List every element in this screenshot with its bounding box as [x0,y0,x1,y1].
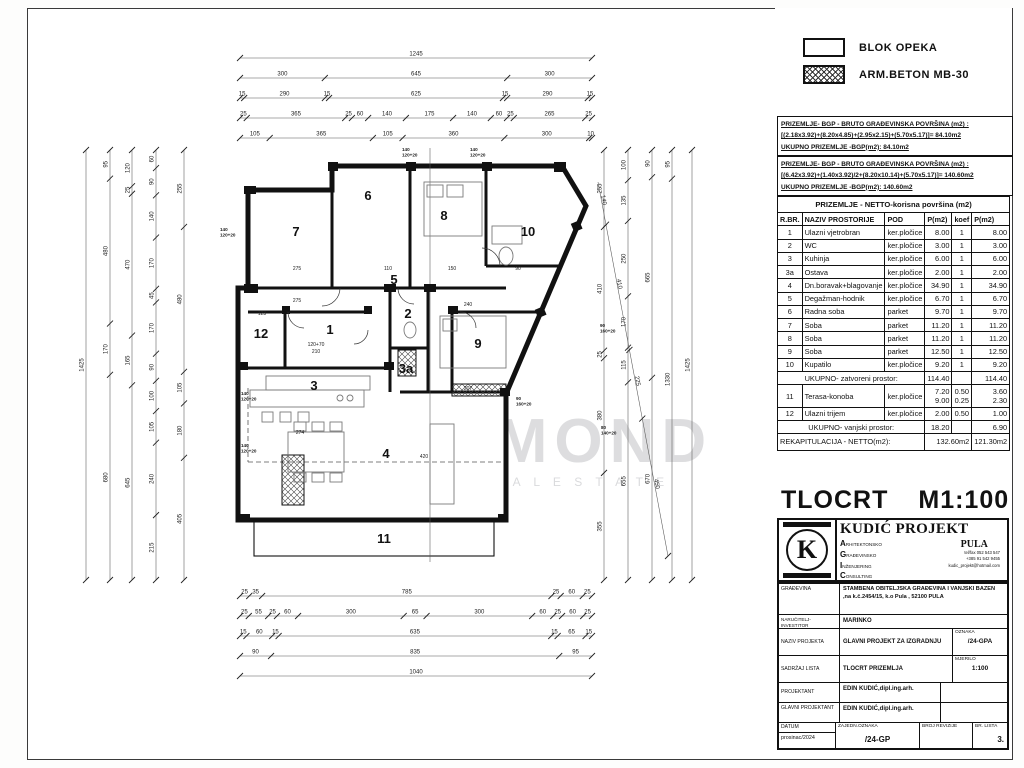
dim-label: 25 [507,112,514,118]
area-table-header: R.BR. NAZIV PROSTORIJE POD P(m2) koef P(… [778,213,1010,226]
dim-label: 115 [622,360,628,370]
dim-label: 300 [542,132,553,138]
dim-label: 25 [585,112,592,118]
interior-dim-label: 210 [312,349,321,355]
table-row: 11Terasa-konobaker.pločice7.20 9.000.50 … [778,385,1010,408]
dim-label: 140 [150,211,156,222]
dim-label: 35 [252,590,259,596]
dim-label: 15 [272,630,279,636]
table-row: 6Radna sobaparket9.7019.70 [778,305,1010,318]
dim-label: 55 [255,610,262,616]
room-number-label: 2 [404,306,411,321]
dim-label: 25 [240,112,247,118]
stamp-right: KUDIĆ PROJEKT ARHITEKTONSKO GRAĐEVINSKO … [837,520,1007,580]
bgp1-line3: UKUPNO PRIZEMLJE -BGP(m2): 84.10m2 [781,142,1009,153]
terrace-outline [254,520,494,556]
room-number-label: 12 [254,326,268,341]
dim-label: 290 [280,92,291,98]
room-number-label: 3a [399,361,414,376]
company-logo: K [779,520,837,580]
dim-label: 60 [568,590,575,596]
area-table-title: PRIZEMLJE - NETTO-korisna površina (m2) [778,197,1010,213]
table-row: 8Sobaparket11.20111.20 [778,332,1010,345]
interior-dim-label: 123 [258,311,267,317]
interior-dim-label: 275 [293,266,302,272]
logo-bar-bottom [783,573,831,578]
dim-label: 300 [474,610,485,616]
room-number-label: 11 [377,531,391,546]
logo-letter: K [797,535,817,565]
dim-label: 1425 [686,358,692,372]
column-header: P(m2) [972,213,1010,226]
area-table-wrap: PRIZEMLJE - NETTO-korisna površina (m2) … [777,196,1009,451]
room-number-label: 1 [326,322,333,337]
dim-label: 1425 [80,358,86,372]
bgp2-line2: [(6.42x3.92)+(1.40x3.92)/2+(8.20x10.14)+… [781,170,1009,181]
dim-label: 90 [252,650,259,656]
dim-label: 165 [126,355,132,366]
oznaka-cell: OZNAKA /24-GPA [952,629,1007,655]
logo-circle: K [786,529,828,571]
column-header: koef [952,213,972,226]
dim-label: 665 [646,272,652,283]
dim-label: 60 [539,610,546,616]
dim-label: 1245 [409,52,423,58]
room-number-label: 3 [310,378,317,393]
broj-revizije-cell: BROJ REVIZIJE [919,723,972,748]
dim-label: 140 [467,112,478,118]
signature-box [940,683,1007,702]
dim-label: 300 [545,72,556,78]
dim-label: 45 [150,292,156,299]
drawing-title-scale: M1:100 [918,486,1009,515]
dim-label: 65 [568,630,575,636]
column-header: POD [885,213,925,226]
dim-label: 240 [150,473,156,484]
dim-label: 645 [411,72,422,78]
area-table-body: 1Ulazni vjetrobranker.pločice8.0018.002W… [778,226,1010,450]
title-block-row-projektant: PROJEKTANT EDIN KUDIĆ,dipl.ing.arh. [779,683,1007,703]
title-block-row-investitor: NARUČITELJ-INVESTITOR MARINKO [779,615,1007,629]
dim-label: 265 [545,112,556,118]
bgp2-line3: UKUPNO PRIZEMLJE -BGP(m2): 140.60m2 [781,182,1009,193]
dim-label: 175 [424,112,435,118]
table-row: 3aOstavaker.pločice2.0012.00 [778,266,1010,279]
dim-label: 15 [585,630,592,636]
dim-label: 60 [569,610,576,616]
drawing-sheet: DIAMOND R E A L E S T A T E [0,0,1024,768]
blok-opeka-swatch [803,38,845,57]
dim-label: 95 [104,160,110,167]
dim-label: 1330 [666,372,672,386]
dim-label: 170 [104,343,110,354]
dim-label: 60 [150,155,156,162]
interior-dim-label: 110 [384,266,392,272]
table-row: 7Sobaparket11.20111.20 [778,319,1010,332]
title-block-row-glavni-projektant: GLAVNI PROJEKTANT EDIN KUDIĆ,dipl.ing.ar… [779,703,1007,723]
dim-label: 290 [542,92,553,98]
dim-label: 25 [553,590,560,596]
interior-dim-label: 120+70 [308,342,325,348]
dim-label: 170 [622,316,628,327]
table-row: 1Ulazni vjetrobranker.pločice8.0018.00 [778,226,1010,239]
interior-dim-label: 420 [420,454,429,460]
legend-label: BLOK OPEKA [859,42,937,54]
dim-label: 180 [178,425,184,436]
dim-label: 645 [126,477,132,488]
title-block-row-gradevina: GRAĐEVINA STAMBENA OBITELJSKA GRAĐEVINA … [779,584,1007,615]
dim-label: 300 [277,72,288,78]
dim-label: 60 [357,112,364,118]
dim-label: 135 [622,195,628,206]
column-header: NAZIV PROSTORIJE [802,213,885,226]
dim-label: 25 [598,350,604,357]
step-hatch-band [452,384,506,396]
bgp-summary-1: PRIZEMLJE- BGP - BRUTO GRAĐEVINSKA POVRŠ… [777,116,1013,156]
dim-label: 60 [284,610,291,616]
dim-label: 25 [126,186,132,193]
dim-label: 105 [178,382,184,393]
window-label: 140120+20 [220,227,236,238]
logo-bar-top [783,522,831,527]
dim-label: 365 [291,112,302,118]
table-row: 12Ulazni trijemker.pločice2.000.501.00 [778,407,1010,420]
dim-label: 360 [448,132,459,138]
dim-label: 655 [622,476,628,487]
recap-row: REKAPITULACIJA - NETTO(m2):132.60m2121.3… [778,434,1010,450]
room-number-label: 6 [364,188,371,203]
dim-label: 1040 [409,670,423,676]
dim-label: 300 [346,610,357,616]
dim-label: 250 [622,253,628,264]
dim-label: 100 [622,159,628,170]
dim-label: 255 [178,183,184,194]
dim-label: 410 [615,279,623,291]
dim-label: 355 [598,521,604,532]
legend-item-arm-beton: ARM.BETON MB-30 [803,65,1003,84]
subtotal-closed-row: UKUPNO- zatvoreni prostor:114.40114.40 [778,372,1010,385]
dim-label: 25 [241,590,248,596]
dim-label: 670 [646,473,652,484]
table-row: 9Sobaparket12.50112.50 [778,345,1010,358]
dim-label: 90 [646,160,652,167]
mjerilo-cell: MJERILO 1:100 [952,656,1007,682]
drawing-title-name: TLOCRT [781,486,888,515]
dim-label: 15 [551,630,558,636]
room-number-label: 5 [390,272,397,287]
room-number-label: 10 [521,224,535,239]
chimney-hatch [282,455,304,505]
signature-box [940,703,1007,722]
company-contact: tel/fax 052 543 547 +385 91 542 9455 kud… [949,550,1001,569]
dim-label: 105 [150,421,156,432]
title-block-row-footer: DATUM prosinac/2024 ZAJEDN.OZNAKA /24-GP… [779,723,1007,748]
bgp2-line1: PRIZEMLJE- BGP - BRUTO GRAĐEVINSKA POVRŠ… [781,159,1009,170]
window-label: 140120+20 [470,147,486,158]
dim-label: 170 [150,322,156,333]
room-number-label: 4 [382,446,390,461]
dim-label: 480 [178,294,184,305]
dim-label: 95 [572,650,579,656]
dim-label: 835 [410,650,421,656]
interior-dim-label: 274 [296,430,305,436]
dim-label: 25 [584,590,591,596]
table-row: 5Degažman-hodnikker.pločice6.7016.70 [778,292,1010,305]
legend-label: ARM.BETON MB-30 [859,69,969,81]
dim-label: 15 [240,630,247,636]
window-label: 140120+20 [402,147,418,158]
table-row: 3Kuhinjaker.pločice6.0016.00 [778,252,1010,265]
interior-dim-label: 240 [464,302,473,308]
dim-label: 25 [584,610,591,616]
dim-label: 90 [150,178,156,185]
br-lista-cell: BR. LISTA 3. [972,723,1007,748]
dim-label: 60 [496,112,503,118]
bgp1-line1: PRIZEMLJE- BGP - BRUTO GRAĐEVINSKA POVRŠ… [781,119,1009,130]
dim-label: 25 [269,610,276,616]
interior-dim-label: 150 [448,266,457,272]
dim-label: 105 [383,132,394,138]
dim-label: 25 [241,610,248,616]
table-row: 4Dn.boravak+blagovanjeker.pločice34.9013… [778,279,1010,292]
dim-label: 60 [256,630,263,636]
company-name: KUDIĆ PROJEKT [840,521,1004,538]
bgp1-line2: [(2.18x3.92)+(8.20x4.85)+(2.95x2.15)+(5.… [781,130,1009,141]
window-label: 90160+20 [600,323,616,334]
dim-label: 625 [411,92,422,98]
interior-dim-label: 275 [293,298,302,304]
dim-label: 635 [410,630,421,636]
title-block: GRAĐEVINA STAMBENA OBITELJSKA GRAĐEVINA … [777,582,1009,750]
right-panel: BLOK OPEKA ARM.BETON MB-30 PRIZEMLJE- BG… [775,8,1012,758]
legend-item-blok-opeka: BLOK OPEKA [803,38,1003,57]
interior-dim-label: 207 [464,386,473,392]
area-table: PRIZEMLJE - NETTO-korisna površina (m2) … [777,196,1010,451]
dim-label: 25 [554,610,561,616]
dim-label: 410 [598,283,604,294]
company-stamp: K KUDIĆ PROJEKT ARHITEKTONSKO GRAĐEVINSK… [777,518,1009,582]
dim-label: 680 [104,472,110,483]
dim-label: 25 [345,112,352,118]
column-header: R.BR. [778,213,803,226]
room-number-label: 8 [440,208,447,223]
legend: BLOK OPEKA ARM.BETON MB-30 [803,38,1003,92]
bgp-summary-2: PRIZEMLJE- BGP - BRUTO GRAĐEVINSKA POVRŠ… [777,156,1013,196]
dim-label: 140 [599,195,607,207]
dim-label: 90 [150,363,156,370]
table-row: 2WCker.pločice3.0013.00 [778,239,1010,252]
dim-label: 470 [126,259,132,270]
dim-label: 120 [126,162,132,173]
dim-label: 365 [316,132,327,138]
zajedn-oznaka-cell: ZAJEDN.OZNAKA /24-GP [836,723,919,748]
company-city: PULA [949,539,1001,550]
dim-label: 105 [250,132,261,138]
dim-label: 380 [598,410,604,421]
arm-beton-swatch [803,65,845,84]
dim-label: 170 [150,257,156,268]
dim-label: 785 [402,590,413,596]
title-block-row-naziv: NAZIV PROJEKTA GLAVNI PROJEKT ZA IZGRADN… [779,629,1007,656]
dim-label: 215 [150,542,156,553]
column-header: P(m2) [925,213,952,226]
datum-cell: DATUM prosinac/2024 [779,723,836,748]
title-block-row-sadrzaj: SADRŽAJ LISTA TLOCRT PRIZEMLJA MJERILO 1… [779,656,1007,683]
room-number-label: 9 [474,336,481,351]
dim-label: 405 [178,513,184,524]
dim-label: 65 [412,610,419,616]
window-label: 90160+20 [516,396,532,407]
dim-label: 140 [382,112,393,118]
dim-label: 95 [666,160,672,167]
interior-dim-label: 90 [515,266,521,272]
subtotal-outdoor-row: UKUPNO- vanjski prostor:18.206.90 [778,421,1010,434]
drawing-title: TLOCRT M1:100 [781,486,1009,515]
dim-label: 225 [633,376,641,388]
table-row: 10Kupatiloker.pločice9.2019.20 [778,358,1010,371]
room-number-label: 7 [292,224,299,239]
dim-label: 480 [104,245,110,256]
dim-label: 100 [150,390,156,401]
